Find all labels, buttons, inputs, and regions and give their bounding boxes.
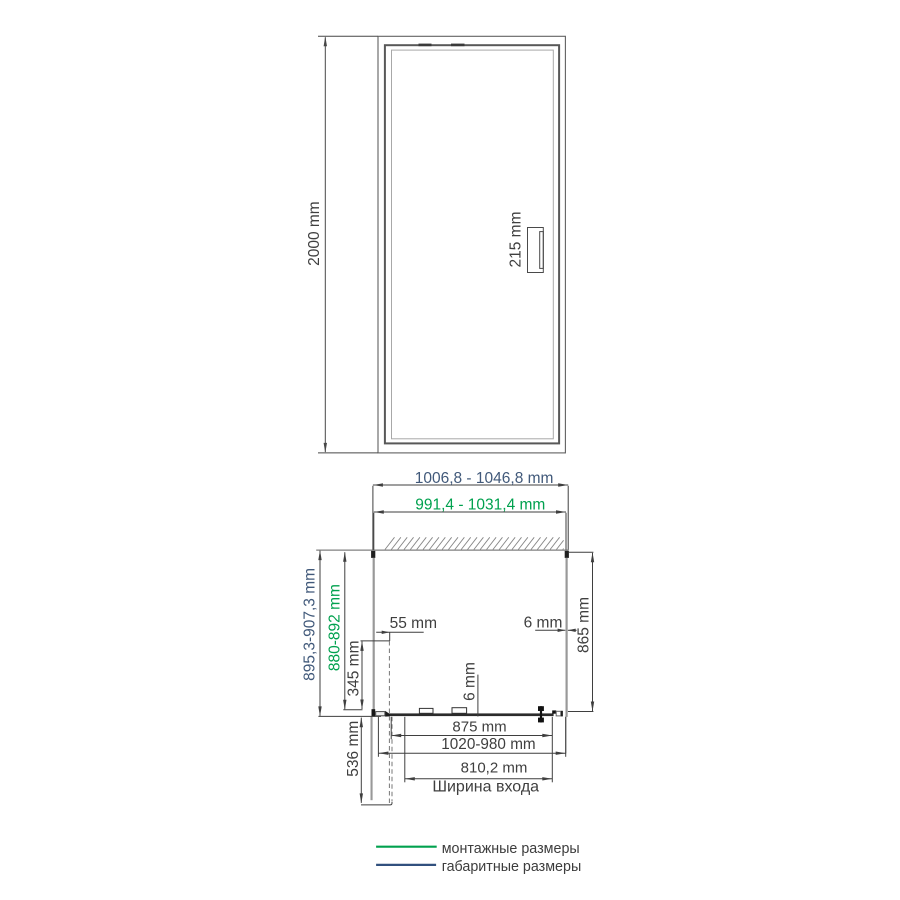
svg-text:Ширина входа: Ширина входа xyxy=(432,779,539,796)
svg-text:монтажные размеры: монтажные размеры xyxy=(442,841,580,857)
svg-text:215 mm: 215 mm xyxy=(507,212,524,268)
svg-text:6 mm: 6 mm xyxy=(462,662,479,701)
svg-text:810,2 mm: 810,2 mm xyxy=(461,760,528,777)
svg-text:895,3-907,3 mm: 895,3-907,3 mm xyxy=(301,568,318,681)
svg-text:536 mm: 536 mm xyxy=(345,721,362,777)
svg-text:875 mm: 875 mm xyxy=(452,719,506,736)
svg-text:1020-980 mm: 1020-980 mm xyxy=(441,736,535,753)
svg-text:2000 mm: 2000 mm xyxy=(306,201,323,266)
svg-text:6 mm: 6 mm xyxy=(524,615,563,632)
svg-text:55 mm: 55 mm xyxy=(390,615,437,632)
svg-text:991,4 - 1031,4 mm: 991,4 - 1031,4 mm xyxy=(415,497,545,514)
svg-text:1006,8 - 1046,8 mm: 1006,8 - 1046,8 mm xyxy=(415,470,554,487)
svg-text:345 mm: 345 mm xyxy=(346,641,363,697)
svg-text:865 mm: 865 mm xyxy=(576,597,593,653)
svg-text:880-892 mm: 880-892 mm xyxy=(327,584,344,671)
svg-text:габаритные размеры: габаритные размеры xyxy=(442,859,582,875)
